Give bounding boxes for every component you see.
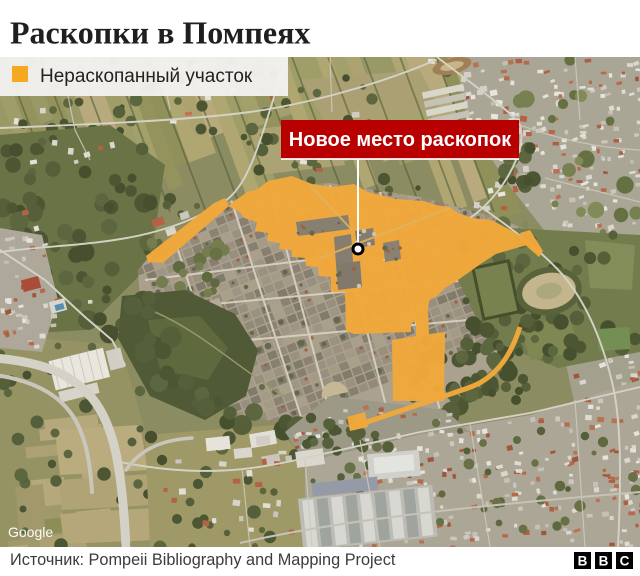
svg-text:B: B [599,554,609,569]
svg-text:Источник: Pompeii Bibliography: Источник: Pompeii Bibliography and Mappi… [10,551,396,569]
svg-text:C: C [620,554,630,569]
svg-text:Раскопки в Помпеях: Раскопки в Помпеях [10,15,310,51]
svg-text:B: B [578,554,588,569]
svg-text:Google: Google [8,524,53,540]
svg-text:Нераскопанный участок: Нераскопанный участок [40,66,253,87]
svg-text:Новое место раскопок: Новое место раскопок [289,129,512,151]
